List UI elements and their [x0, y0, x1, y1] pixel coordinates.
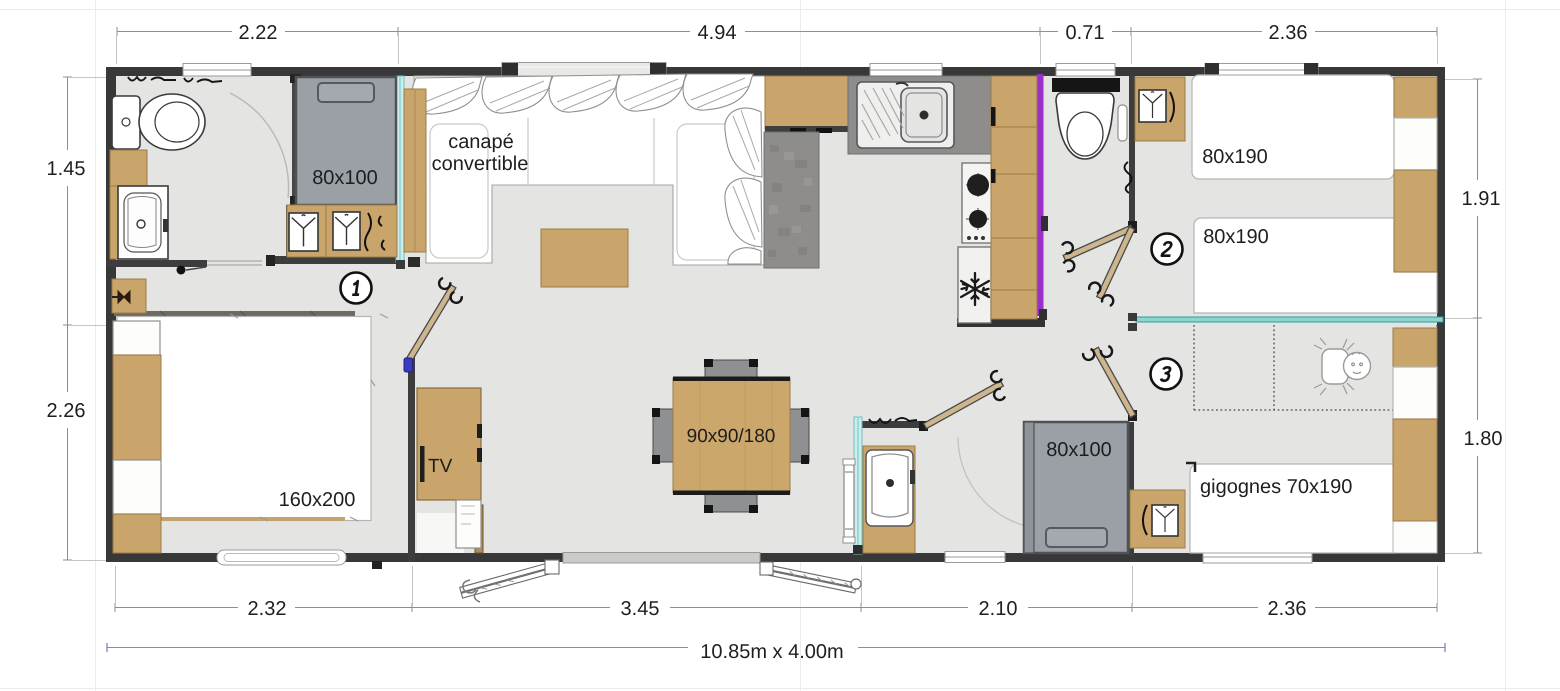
svg-text:2.36: 2.36 — [1269, 22, 1308, 44]
svg-text:10.85m x 4.00m: 10.85m x 4.00m — [700, 641, 843, 663]
svg-text:3.45: 3.45 — [621, 598, 660, 620]
svg-text:90x90/180: 90x90/180 — [687, 426, 776, 447]
svg-text:TV: TV — [428, 456, 453, 477]
svg-text:2.36: 2.36 — [1268, 598, 1307, 620]
svg-text:4.94: 4.94 — [698, 22, 737, 44]
svg-text:canapé: canapé — [448, 131, 514, 153]
svg-text:2.22: 2.22 — [239, 22, 278, 44]
svg-text:gigognes 70x190: gigognes 70x190 — [1200, 476, 1352, 498]
svg-text:2.32: 2.32 — [248, 598, 287, 620]
svg-text:160x200: 160x200 — [279, 489, 356, 511]
svg-text:1.45: 1.45 — [47, 158, 86, 180]
svg-text:1.80: 1.80 — [1464, 428, 1503, 450]
svg-text:2.10: 2.10 — [979, 598, 1018, 620]
svg-text:80x190: 80x190 — [1203, 226, 1269, 248]
svg-text:80x100: 80x100 — [1046, 439, 1112, 461]
svg-text:1.91: 1.91 — [1462, 188, 1501, 210]
svg-text:convertible: convertible — [432, 153, 529, 175]
svg-text:0.71: 0.71 — [1066, 22, 1105, 44]
svg-text:80x100: 80x100 — [312, 167, 378, 189]
svg-text:2.26: 2.26 — [47, 400, 86, 422]
svg-text:80x190: 80x190 — [1202, 146, 1268, 168]
